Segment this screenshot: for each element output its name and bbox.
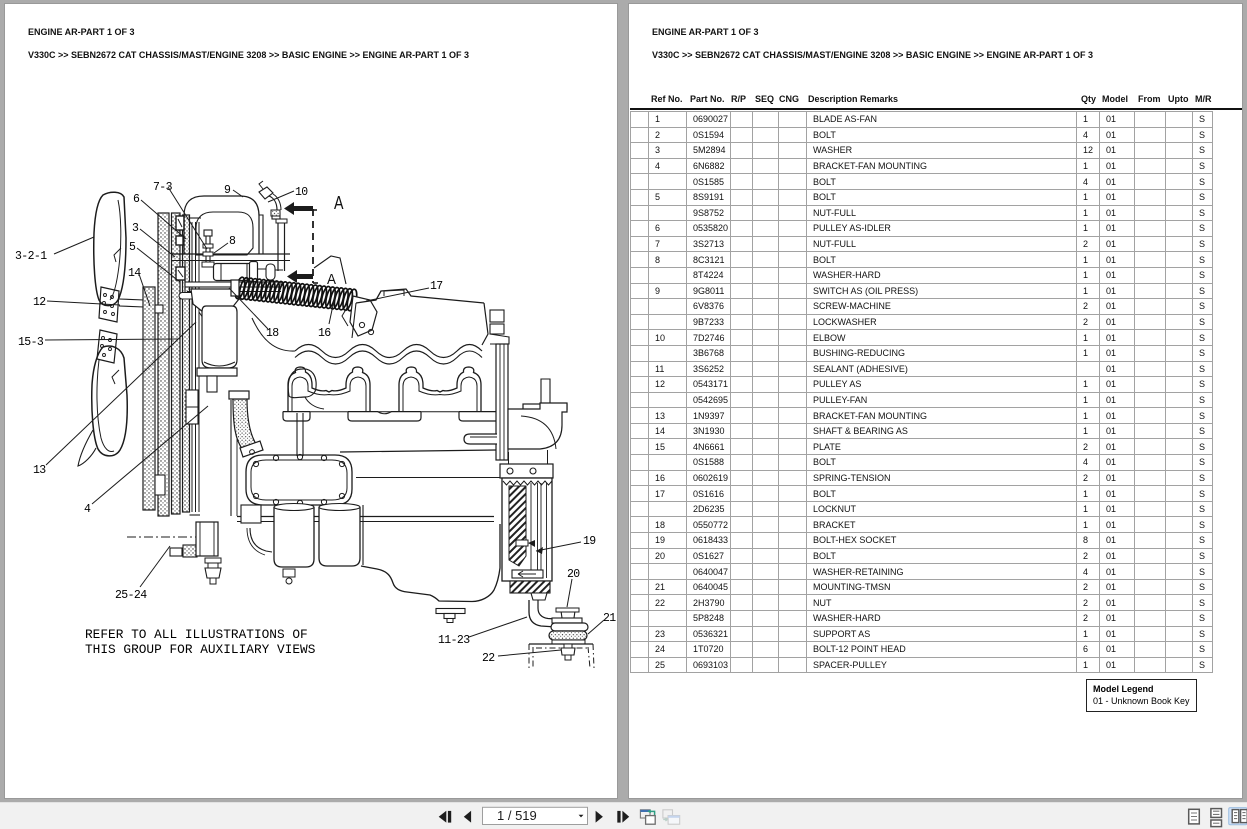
svg-text:19: 19 (583, 535, 596, 548)
svg-text:3: 3 (132, 222, 139, 235)
svg-text:22: 22 (482, 652, 495, 665)
svg-text:7-3: 7-3 (153, 181, 173, 194)
svg-text:20: 20 (567, 568, 580, 581)
svg-text:8: 8 (229, 235, 236, 248)
svg-text:17: 17 (430, 280, 443, 293)
svg-text:5: 5 (129, 241, 136, 254)
svg-text:15-3: 15-3 (18, 336, 44, 349)
svg-text:1 / 519: 1 / 519 (497, 808, 537, 823)
svg-text:6: 6 (133, 193, 140, 206)
svg-text:11-23: 11-23 (438, 634, 470, 647)
svg-text:10: 10 (295, 186, 308, 199)
svg-text:25-24: 25-24 (115, 589, 147, 602)
svg-text:12: 12 (33, 296, 46, 309)
svg-text:21: 21 (603, 612, 616, 625)
svg-text:THIS GROUP FOR AUXILIARY VIEWS: THIS GROUP FOR AUXILIARY VIEWS (85, 642, 316, 657)
svg-text:3-2-1: 3-2-1 (15, 250, 47, 263)
svg-text:A: A (334, 193, 344, 213)
svg-text:A: A (327, 271, 336, 288)
svg-text:14: 14 (128, 267, 141, 280)
svg-text:9: 9 (224, 184, 231, 197)
svg-text:16: 16 (318, 327, 331, 340)
svg-text:13: 13 (33, 464, 46, 477)
svg-text:REFER TO ALL ILLUSTRATIONS OF: REFER TO ALL ILLUSTRATIONS OF (85, 627, 308, 642)
svg-text:4: 4 (84, 503, 91, 516)
